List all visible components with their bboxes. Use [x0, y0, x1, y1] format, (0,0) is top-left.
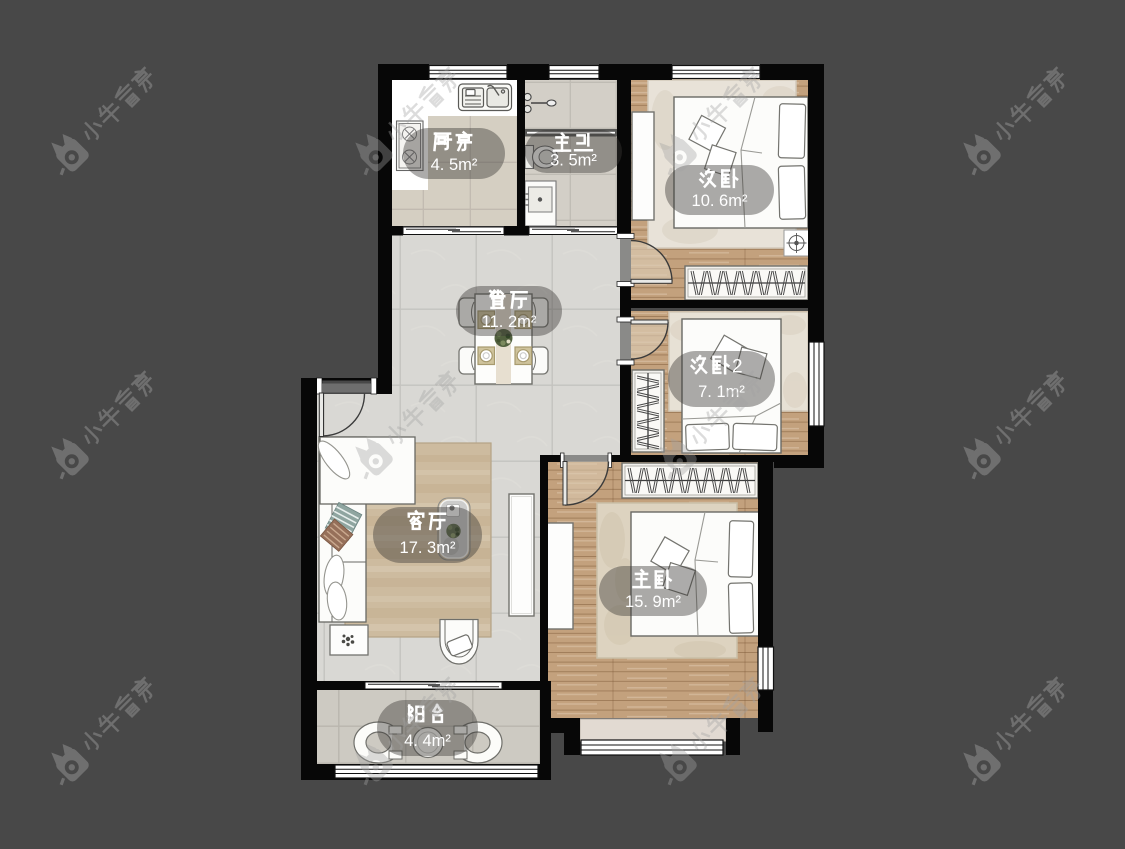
svg-text:17. 3m²: 17. 3m²	[400, 539, 456, 557]
svg-text:10. 6m²: 10. 6m²	[692, 192, 748, 210]
svg-text:2: 2	[732, 356, 743, 377]
svg-text:4. 4m²: 4. 4m²	[404, 732, 451, 750]
svg-text:3. 5m²: 3. 5m²	[550, 151, 597, 169]
svg-text:15. 9m²: 15. 9m²	[625, 593, 681, 611]
svg-text:11. 2m²: 11. 2m²	[482, 313, 537, 331]
svg-text:4. 5m²: 4. 5m²	[431, 156, 478, 174]
